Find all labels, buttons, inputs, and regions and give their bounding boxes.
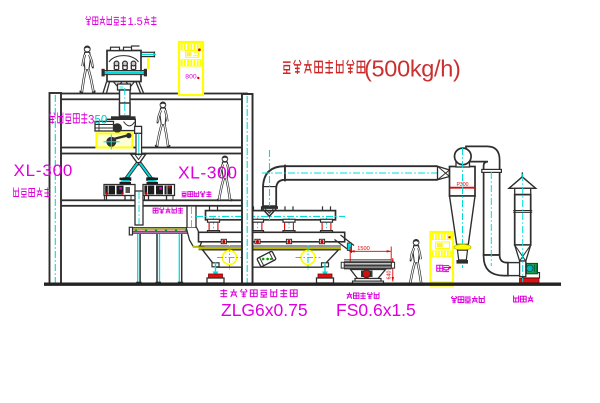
svg-text:XL-300: XL-300 <box>178 163 237 183</box>
svg-text:3: 3 <box>88 115 94 127</box>
svg-text:1.5: 1.5 <box>128 16 143 28</box>
svg-text:1500: 1500 <box>357 246 369 252</box>
svg-text:50: 50 <box>95 115 108 127</box>
svg-text:(500kg/h): (500kg/h) <box>364 56 461 82</box>
svg-text:640: 640 <box>387 271 393 280</box>
svg-text:ZLG6x0.75: ZLG6x0.75 <box>221 300 308 320</box>
svg-text:XL-300: XL-300 <box>14 161 74 180</box>
svg-text:800: 800 <box>185 74 197 81</box>
svg-text:FS0.6x1.5: FS0.6x1.5 <box>336 300 416 320</box>
